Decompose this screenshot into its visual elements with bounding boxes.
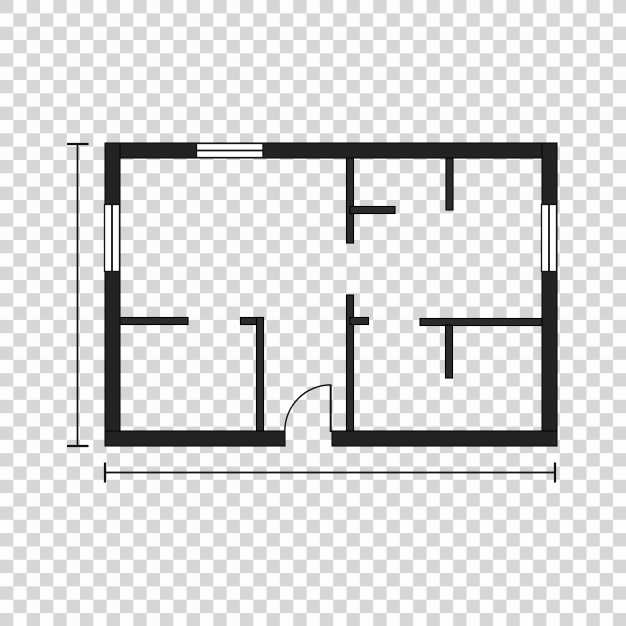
door-swing-arc (285, 385, 331, 432)
exterior-wall-right (542, 143, 557, 446)
transparent-checkerboard-background (0, 0, 626, 626)
partition-right-horizontal (420, 319, 542, 326)
partition-right-stub-vertical (446, 325, 453, 378)
partition-closet-vertical (257, 318, 264, 432)
exterior-wall-bottom-right (332, 431, 557, 446)
exterior-wall-top (105, 143, 557, 158)
partition-top-right-vertical (446, 158, 453, 210)
partition-left-horizontal (120, 318, 188, 325)
exterior-wall-bottom-left (105, 431, 285, 446)
partition-bottom-center-vertical (347, 295, 354, 431)
partition-top-center-vertical (347, 158, 354, 243)
partition-top-center-stub (350, 207, 395, 214)
floor-plan-icon (0, 0, 626, 626)
exterior-wall-left (105, 143, 120, 446)
partition-bottom-center-stub (350, 318, 369, 325)
